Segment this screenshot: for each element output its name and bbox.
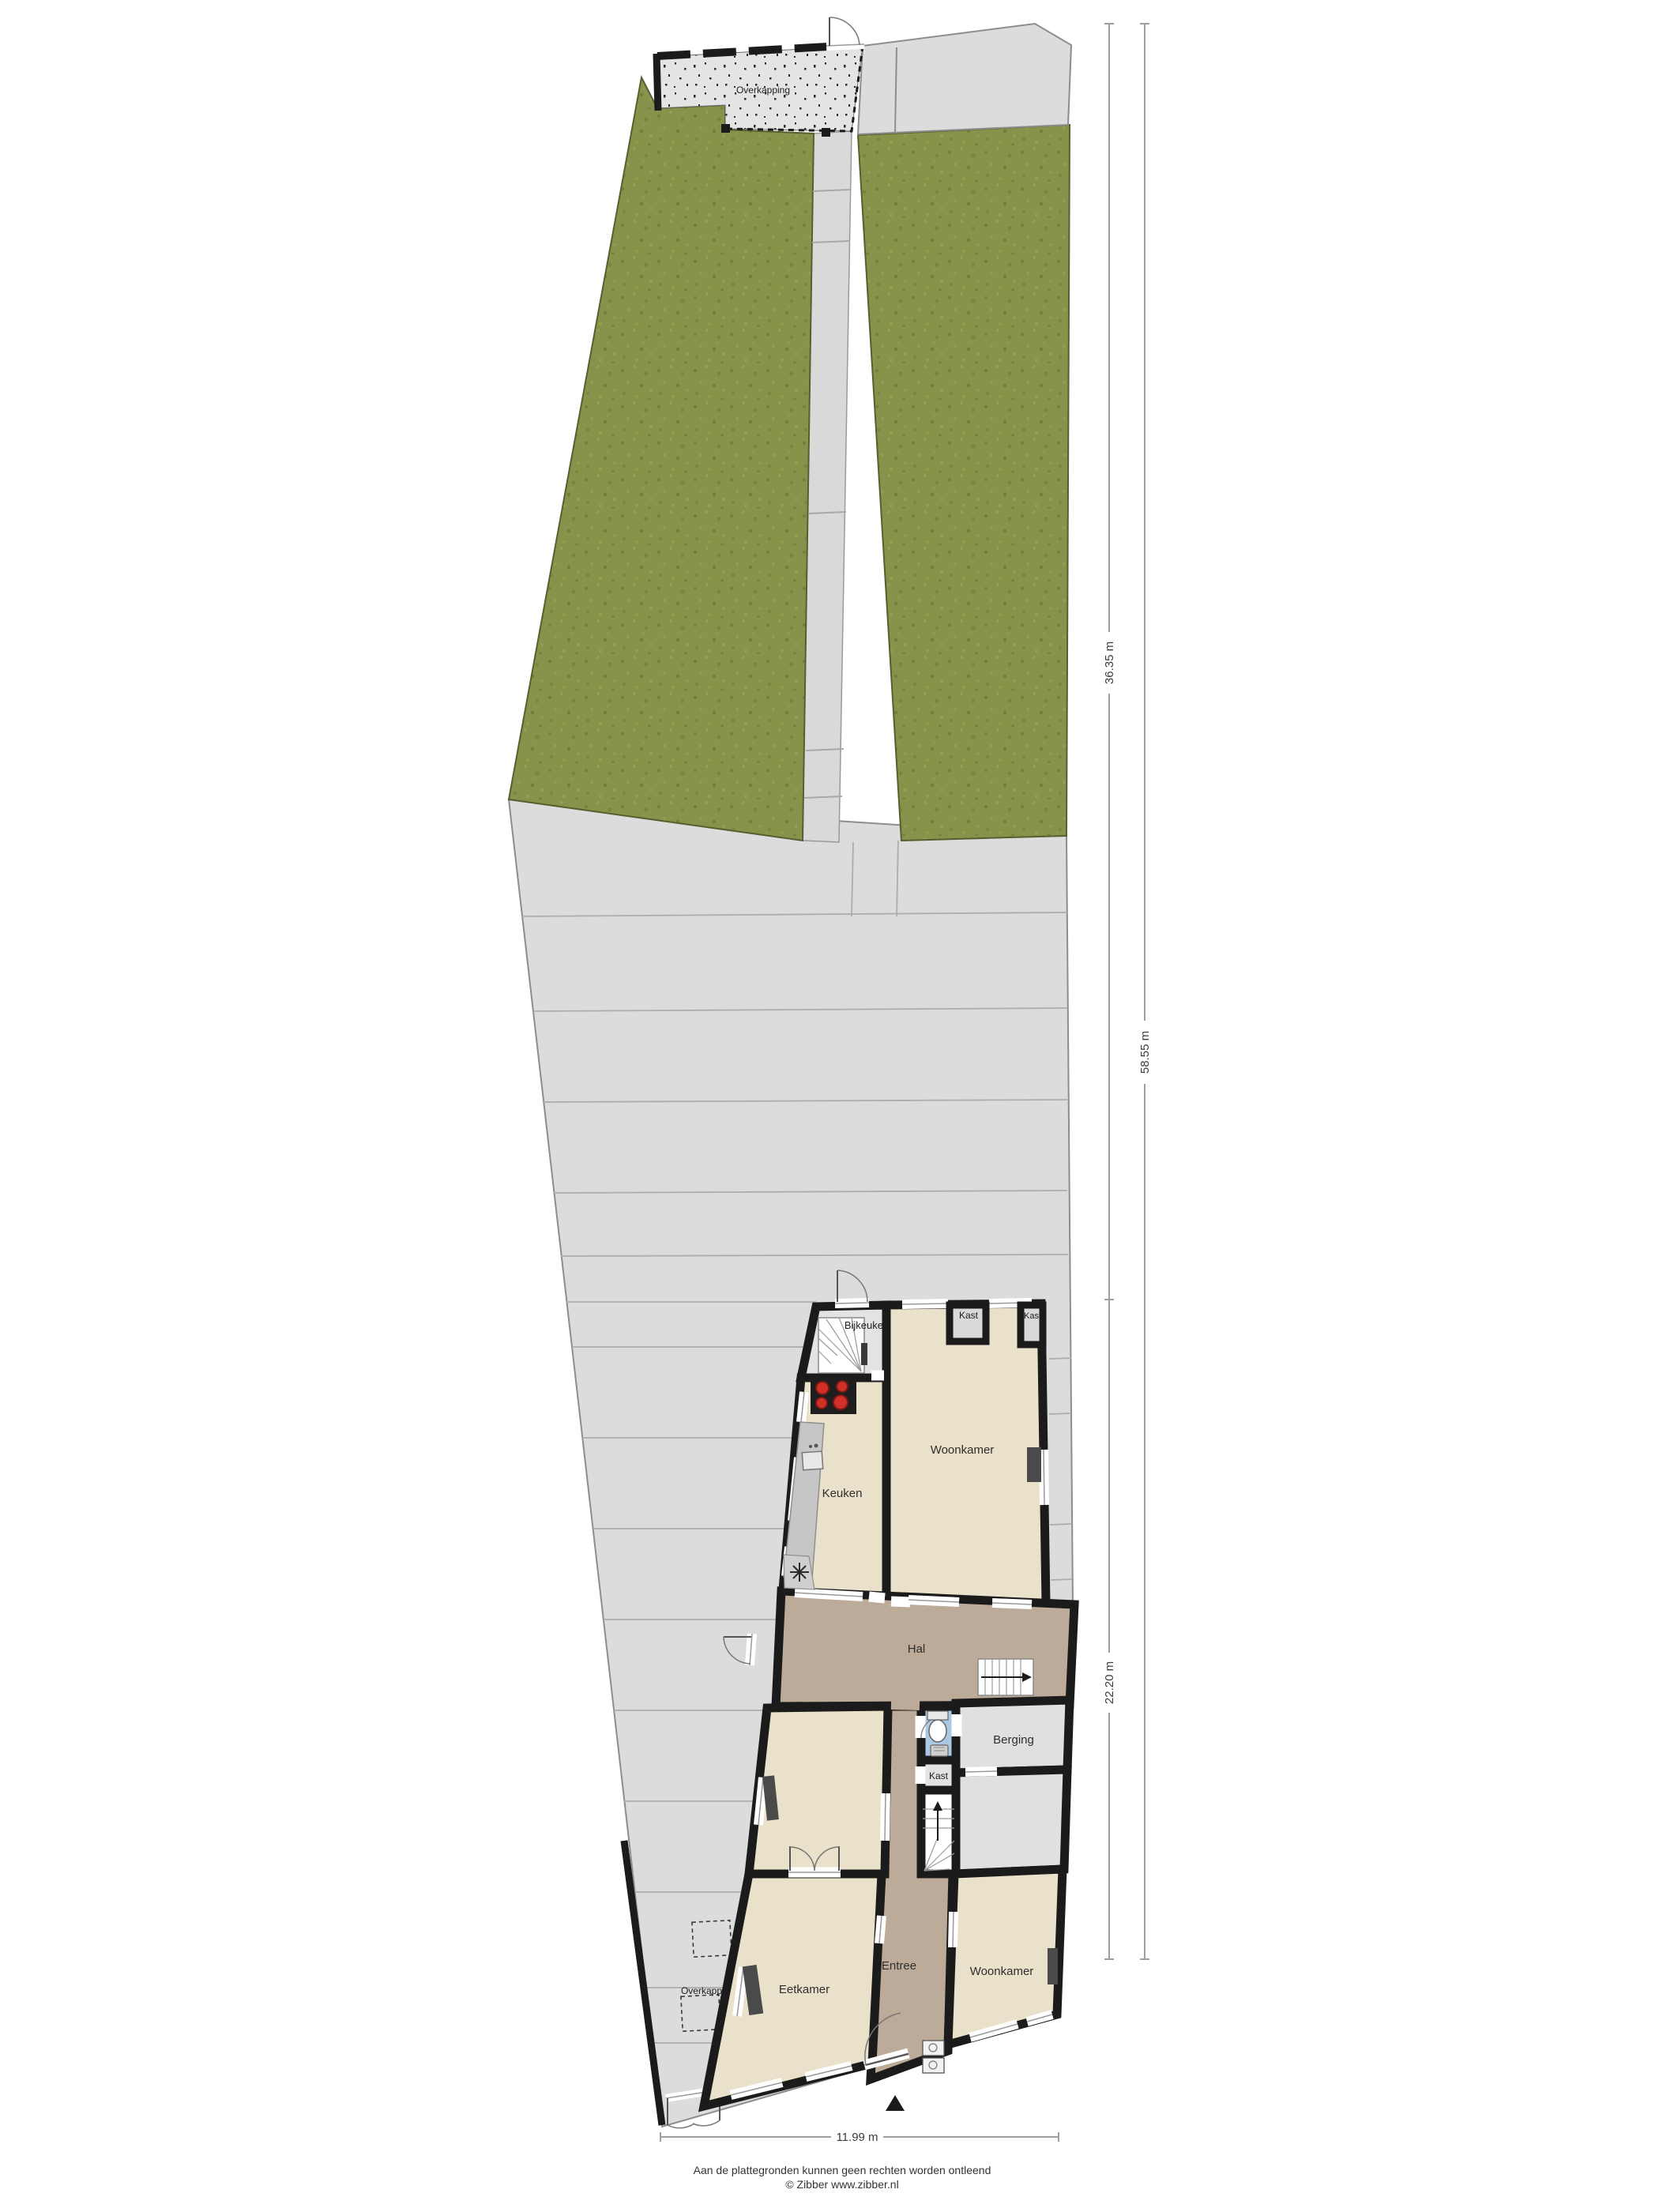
floor-plan-page: Overkapping — [0, 0, 1659, 2212]
kast-corner-closet: Kast — [1021, 1305, 1043, 1345]
kast-mid-label: Kast — [929, 1770, 949, 1781]
dim-total-depth: 58.55 m — [1138, 1031, 1152, 1074]
keuken-label: Keuken — [822, 1487, 863, 1500]
canopy-post-1 — [721, 124, 730, 133]
kast-top-closet: Kast — [950, 1305, 986, 1341]
woonkamer-top-label: Woonkamer — [931, 1443, 995, 1457]
eetkamer-label: Eetkamer — [779, 1983, 829, 1996]
footer-disclaimer: Aan de plattegronden kunnen geen rechten… — [694, 2164, 991, 2176]
berging-label: Berging — [993, 1733, 1034, 1747]
floor-plan-canvas: Overkapping — [0, 0, 1659, 2212]
kitchen-sink — [802, 1451, 822, 1470]
radiator-woonkamer-bottom — [1048, 1948, 1058, 1984]
room-storage-lower — [956, 1770, 1067, 1874]
drain-symbol — [784, 1555, 814, 1589]
wc-icon — [929, 1720, 946, 1742]
stove — [811, 1376, 856, 1414]
radiator-woonkamer-top — [1027, 1447, 1041, 1482]
kast-corner-label: Kast — [1024, 1311, 1041, 1321]
dim-width: 11.99 m — [836, 2131, 878, 2144]
hal-stair — [978, 1659, 1033, 1695]
bijkeuken-label: Bijkeuken — [845, 1319, 889, 1331]
dim-house-depth: 22.20 m — [1103, 1661, 1116, 1704]
kast-top-label: Kast — [959, 1310, 979, 1321]
overkapping-top-label: Overkapping — [736, 85, 790, 96]
overkapping-left-wall — [656, 54, 658, 111]
dim-garden-depth: 36.35 m — [1103, 641, 1116, 684]
toilet-fixtures — [927, 1711, 948, 1756]
woonkamer-bottom-label: Woonkamer — [970, 1965, 1034, 1978]
entree-label: Entree — [882, 1959, 916, 1973]
hal-label: Hal — [908, 1642, 926, 1656]
footer-credit: © Zibber www.zibber.nl — [785, 2178, 898, 2191]
canopy-post-2 — [822, 128, 830, 137]
